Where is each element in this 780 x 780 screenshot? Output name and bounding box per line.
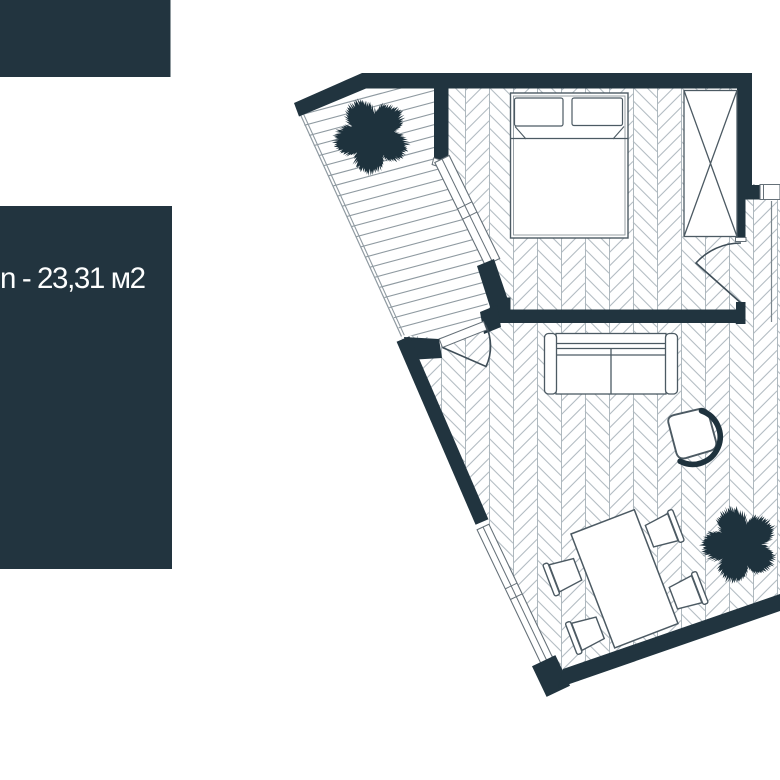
svg-text:n - 23,31 м2: n - 23,31 м2: [0, 262, 146, 295]
